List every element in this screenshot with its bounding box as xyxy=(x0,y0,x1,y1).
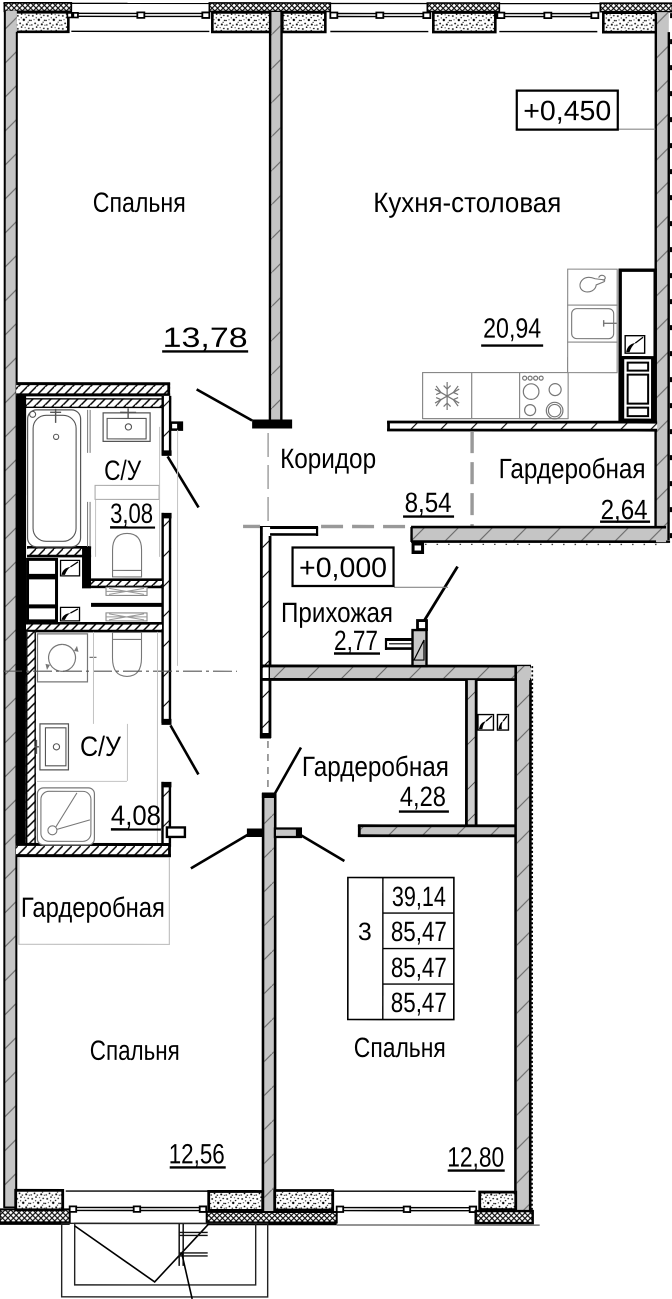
svg-text:Спальня: Спальня xyxy=(90,1035,180,1066)
svg-text:Спальня: Спальня xyxy=(93,187,186,218)
svg-text:3,08: 3,08 xyxy=(110,498,153,529)
svg-text:4,28: 4,28 xyxy=(400,781,446,812)
svg-text:С/У: С/У xyxy=(80,731,121,762)
svg-text:С/У: С/У xyxy=(104,455,141,486)
svg-text:12,80: 12,80 xyxy=(447,1142,504,1173)
svg-text:12,56: 12,56 xyxy=(169,1138,225,1169)
svg-text:85,47: 85,47 xyxy=(391,987,447,1018)
svg-text:Коридор: Коридор xyxy=(280,443,376,474)
svg-text:3: 3 xyxy=(358,918,372,946)
svg-text:2,77: 2,77 xyxy=(334,625,378,656)
svg-text:+0,000: +0,000 xyxy=(299,552,387,583)
svg-text:Кухня-столовая: Кухня-столовая xyxy=(373,187,561,218)
svg-text:Прихожая: Прихожая xyxy=(281,597,393,628)
svg-text:Гардеробная: Гардеробная xyxy=(499,453,646,484)
svg-text:Гардеробная: Гардеробная xyxy=(302,751,449,782)
svg-text:85,47: 85,47 xyxy=(391,916,447,947)
svg-text:Гардеробная: Гардеробная xyxy=(21,892,165,923)
svg-text:+0,450: +0,450 xyxy=(523,95,611,126)
svg-text:4,08: 4,08 xyxy=(111,800,161,831)
svg-text:13,78: 13,78 xyxy=(163,322,248,353)
svg-text:85,47: 85,47 xyxy=(391,952,447,983)
svg-text:Спальня: Спальня xyxy=(354,1032,446,1063)
svg-text:8,54: 8,54 xyxy=(405,487,452,518)
svg-text:39,14: 39,14 xyxy=(392,881,446,912)
svg-text:20,94: 20,94 xyxy=(483,313,541,344)
